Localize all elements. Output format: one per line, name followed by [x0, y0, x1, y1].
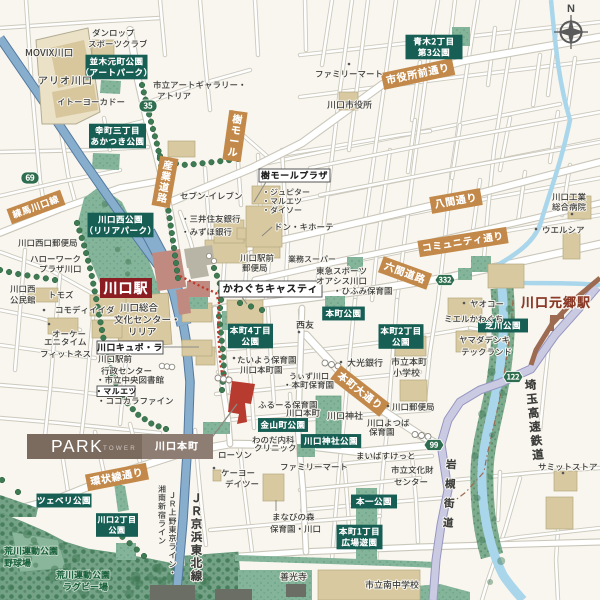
svg-text:69: 69 — [25, 173, 35, 184]
svg-text:エニタイム: エニタイム — [44, 336, 87, 348]
svg-text:川口西口郵便局: 川口西口郵便局 — [18, 237, 78, 249]
svg-text:ミエルかわぐち: ミエルかわぐち — [444, 313, 504, 325]
svg-text:テックランド: テックランド — [461, 346, 512, 358]
svg-text:クリニック: クリニック — [254, 442, 297, 454]
svg-text:川口神社: 川口神社 — [327, 409, 363, 422]
svg-text:公園: 公園 — [109, 525, 126, 536]
svg-text:公民館: 公民館 — [10, 294, 36, 306]
svg-text:樹モールプラザ: 樹モールプラザ — [261, 168, 328, 181]
svg-text:リリア: リリア — [128, 324, 157, 338]
svg-text:ル: ル — [227, 143, 239, 159]
svg-text:本一公園: 本一公園 — [355, 495, 392, 507]
svg-text:市立南中学校: 市立南中学校 — [365, 578, 419, 591]
svg-text:まなびの森: まなびの森 — [272, 511, 315, 523]
svg-text:・本町保育園: ・本町保育園 — [283, 379, 334, 391]
svg-text:小学校: 小学校 — [393, 366, 420, 379]
svg-text:スポーツクラブ: スポーツクラブ — [88, 38, 148, 50]
svg-text:アトリア: アトリア — [157, 90, 191, 102]
svg-text:PARK: PARK — [51, 436, 103, 456]
svg-text:ローソン: ローソン — [218, 449, 252, 461]
svg-text:金山町公園: 金山町公園 — [259, 419, 305, 431]
svg-text:イトーヨーカドー: イトーヨーカドー — [57, 96, 125, 108]
svg-text:99: 99 — [430, 440, 439, 451]
svg-text:業務スーパー: 業務スーパー — [288, 254, 336, 265]
svg-text:本町公園: 本町公園 — [324, 307, 361, 319]
svg-text:川口郵便局: 川口郵便局 — [392, 401, 435, 413]
svg-text:・ダイソー: ・ダイソー — [262, 205, 302, 216]
svg-text:プラザ川口: プラザ川口 — [39, 263, 82, 275]
svg-text:・: ・ — [169, 567, 177, 578]
svg-text:あかつき公園: あかつき公園 — [90, 135, 144, 147]
svg-text:公園: 公園 — [392, 336, 410, 348]
svg-text:ファミリーマート: ファミリーマート — [280, 461, 348, 473]
svg-text:川口本町: 川口本町 — [154, 438, 199, 453]
svg-text:まいばすけっと: まいばすけっと — [356, 450, 416, 462]
svg-text:・ひふみ保育園: ・ひふみ保育園 — [333, 285, 393, 297]
svg-text:サミットストア: サミットストア — [538, 461, 598, 473]
svg-text:N: N — [567, 3, 575, 15]
svg-text:TOWER: TOWER — [103, 445, 137, 452]
svg-text:川口駅: 川口駅 — [103, 278, 149, 298]
svg-text:市立文化財: 市立文化財 — [391, 464, 434, 476]
svg-text:フィットネス: フィットネス — [40, 348, 91, 360]
svg-text:公園: 公園 — [241, 335, 259, 347]
svg-text:（リリアパーク）: （リリアパーク） — [84, 224, 156, 236]
svg-text:川口駅前: 川口駅前 — [98, 353, 133, 365]
svg-text:総合病院: 総合病院 — [552, 201, 587, 213]
svg-text:・みずほ銀行: ・みずほ銀行 — [181, 226, 233, 238]
svg-text:川口市役所: 川口市役所 — [327, 98, 372, 111]
svg-text:ヤオコー: ヤオコー — [470, 298, 504, 310]
svg-text:郵便局: 郵便局 — [242, 262, 268, 274]
svg-text:アリオ川口: アリオ川口 — [38, 72, 93, 87]
svg-text:川口キュポ・ラ: 川口キュポ・ラ — [96, 340, 163, 353]
svg-text:・市立中央図書館: ・市立中央図書館 — [96, 374, 165, 386]
svg-text:122: 122 — [507, 372, 521, 383]
svg-text:川口本町: 川口本町 — [286, 407, 321, 419]
svg-text:332: 332 — [439, 275, 453, 286]
svg-text:川口神社公園: 川口神社公園 — [303, 435, 358, 447]
svg-text:保育園: 保育園 — [369, 426, 395, 438]
svg-text:かわぐちキャスティ: かわぐちキャスティ — [223, 280, 318, 295]
svg-text:第3公園: 第3公園 — [417, 46, 450, 58]
svg-text:ツェベリ公園: ツェベリ公園 — [37, 494, 91, 506]
svg-text:ドン・キホーテ: ドン・キホーテ — [274, 221, 334, 233]
svg-text:ン: ン — [158, 536, 166, 547]
svg-text:セブン-イレブン: セブン-イレブン — [180, 190, 243, 202]
svg-text:MOVIX川口: MOVIX川口 — [25, 45, 73, 59]
svg-text:ヤマダデンキ: ヤマダデンキ — [459, 334, 510, 346]
svg-text:岩: 岩 — [445, 457, 458, 473]
svg-text:槻: 槻 — [445, 476, 457, 492]
svg-text:35: 35 — [143, 101, 153, 112]
svg-text:大光銀行: 大光銀行 — [347, 356, 383, 369]
svg-text:デイツー: デイツー — [225, 478, 259, 490]
svg-text:川口本町園: 川口本町園 — [240, 364, 283, 376]
svg-text:広場遊園: 広場遊園 — [340, 536, 377, 548]
svg-text:川口元郷駅: 川口元郷駅 — [520, 292, 591, 311]
svg-text:街: 街 — [443, 496, 456, 512]
svg-text:トモズ: トモズ — [48, 289, 74, 301]
svg-text:線: 線 — [190, 568, 203, 584]
svg-text:センター: センター — [394, 476, 428, 488]
svg-text:西友: 西友 — [296, 318, 314, 331]
svg-text:保育園・川口: 保育園・川口 — [270, 523, 321, 535]
svg-text:善光寺: 善光寺 — [280, 570, 307, 583]
svg-text:・三井住友銀行: ・三井住友銀行 — [181, 213, 241, 225]
svg-text:野球場: 野球場 — [4, 556, 31, 569]
svg-text:ウエルシア: ウエルシア — [542, 224, 585, 236]
svg-text:・ココカラファイン: ・ココカラファイン — [97, 395, 174, 407]
svg-text:ラグビー場: ラグビー場 — [63, 580, 108, 593]
svg-text:コモディイイダ: コモディイイダ — [55, 304, 115, 316]
svg-text:道: 道 — [442, 515, 454, 531]
svg-text:ファミリーマート: ファミリーマート — [315, 68, 383, 80]
